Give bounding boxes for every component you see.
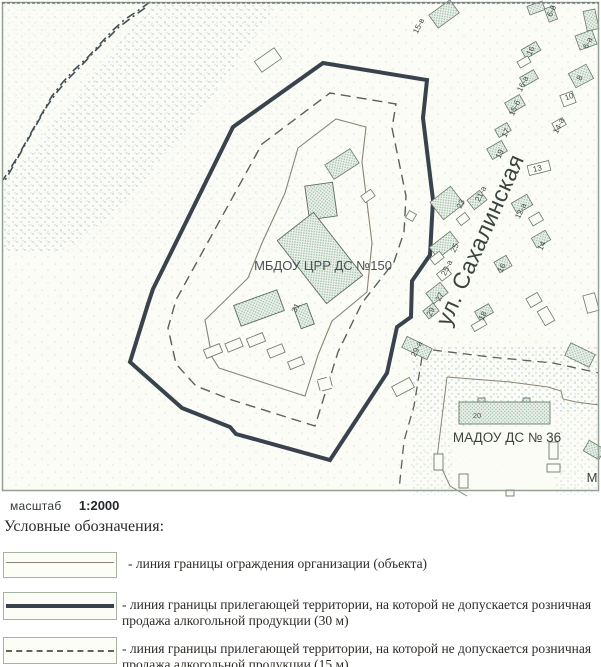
edge-letter: М	[587, 470, 598, 485]
legend-item-30m: - линия границы прилегающей территории, …	[122, 597, 594, 629]
legend-title: Условные обозначения:	[4, 518, 164, 536]
legend-swatch-fence	[3, 552, 117, 578]
legend-swatch-30m	[3, 592, 117, 620]
scale-value: 1:2000	[79, 498, 119, 513]
fence-line-sample	[6, 562, 114, 563]
boundary-30m-line-sample	[6, 604, 114, 608]
legend-item-fence: - линия границы ограждения организации (…	[128, 556, 600, 572]
madou-building-number: 20	[473, 411, 481, 420]
scanned-territory-map-page: МБДОУ ЦРР ДС №150 ул. Сахалинская МАДОУ …	[0, 0, 601, 667]
madou-object-label: МАДОУ ДС № 36	[453, 430, 561, 445]
legend-swatch-15m	[3, 637, 117, 664]
blue-stipple-area	[3, 3, 303, 253]
boundary-15m-line-sample	[6, 650, 114, 652]
scale-label: масштаб	[10, 499, 62, 513]
site-map: МБДОУ ЦРР ДС №150 ул. Сахалинская МАДОУ …	[0, 0, 601, 497]
legend-item-15m: - линия границы прилегающей территории, …	[122, 641, 594, 667]
main-object-label: МБДОУ ЦРР ДС №150	[254, 258, 392, 273]
scale-row: масштаб 1:2000	[10, 498, 119, 513]
